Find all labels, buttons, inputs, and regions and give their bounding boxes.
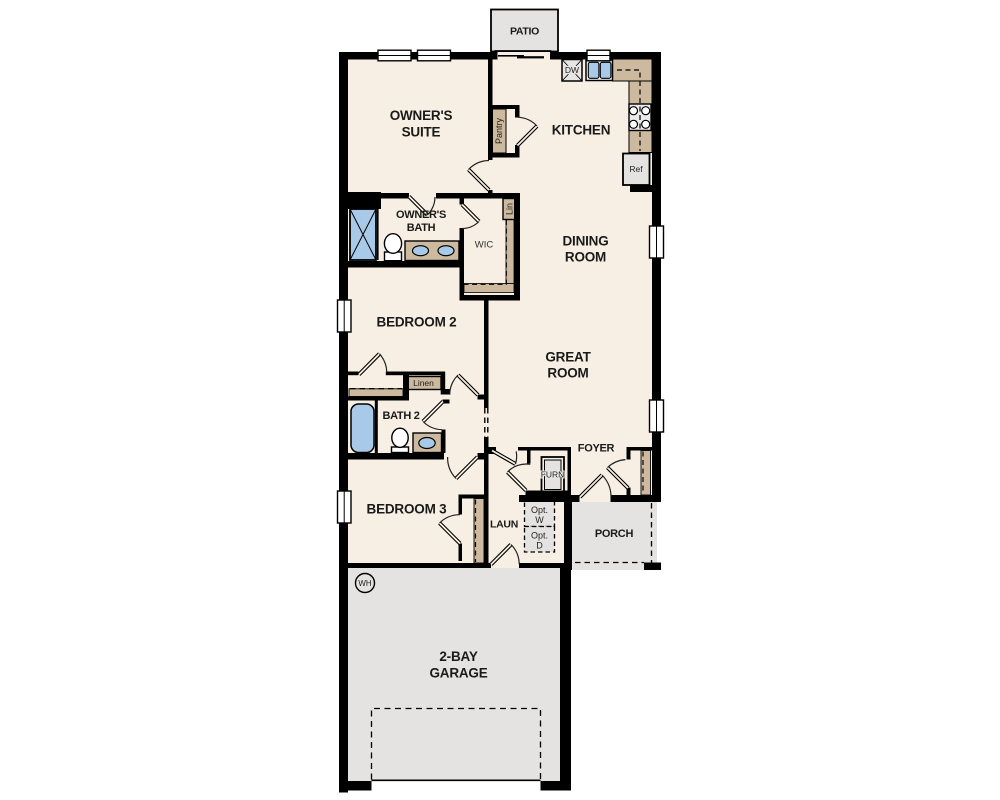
svg-text:OWNER'S: OWNER'S xyxy=(396,209,446,221)
svg-text:FURN: FURN xyxy=(541,470,565,480)
svg-text:Ref: Ref xyxy=(629,164,643,174)
svg-text:LAUN: LAUN xyxy=(490,519,518,531)
svg-text:WH: WH xyxy=(358,579,372,588)
svg-text:BEDROOM 3: BEDROOM 3 xyxy=(367,502,448,517)
svg-text:ROOM: ROOM xyxy=(547,366,588,381)
svg-text:GREAT: GREAT xyxy=(545,350,591,365)
svg-text:SUITE: SUITE xyxy=(402,125,441,140)
svg-text:DINING: DINING xyxy=(562,234,608,249)
svg-text:BATH: BATH xyxy=(407,222,436,234)
svg-text:ROOM: ROOM xyxy=(565,250,606,265)
svg-text:BATH 2: BATH 2 xyxy=(382,410,419,422)
svg-text:Opt.: Opt. xyxy=(531,531,548,541)
svg-text:Lin: Lin xyxy=(505,203,515,215)
svg-text:KITCHEN: KITCHEN xyxy=(552,123,611,138)
svg-text:Opt.: Opt. xyxy=(531,505,548,515)
svg-text:2-BAY: 2-BAY xyxy=(439,649,477,664)
svg-text:Pantry: Pantry xyxy=(494,117,504,144)
svg-text:FOYER: FOYER xyxy=(578,443,615,455)
svg-text:Linen: Linen xyxy=(413,378,434,388)
svg-text:PATIO: PATIO xyxy=(510,26,539,38)
svg-text:W: W xyxy=(535,515,544,525)
svg-text:DW: DW xyxy=(565,65,579,75)
svg-text:BEDROOM 2: BEDROOM 2 xyxy=(377,315,457,330)
svg-text:OWNER'S: OWNER'S xyxy=(390,108,453,123)
svg-text:PORCH: PORCH xyxy=(595,528,634,540)
svg-text:GARAGE: GARAGE xyxy=(429,666,487,681)
svg-text:WIC: WIC xyxy=(475,240,494,251)
svg-text:D: D xyxy=(536,541,543,551)
